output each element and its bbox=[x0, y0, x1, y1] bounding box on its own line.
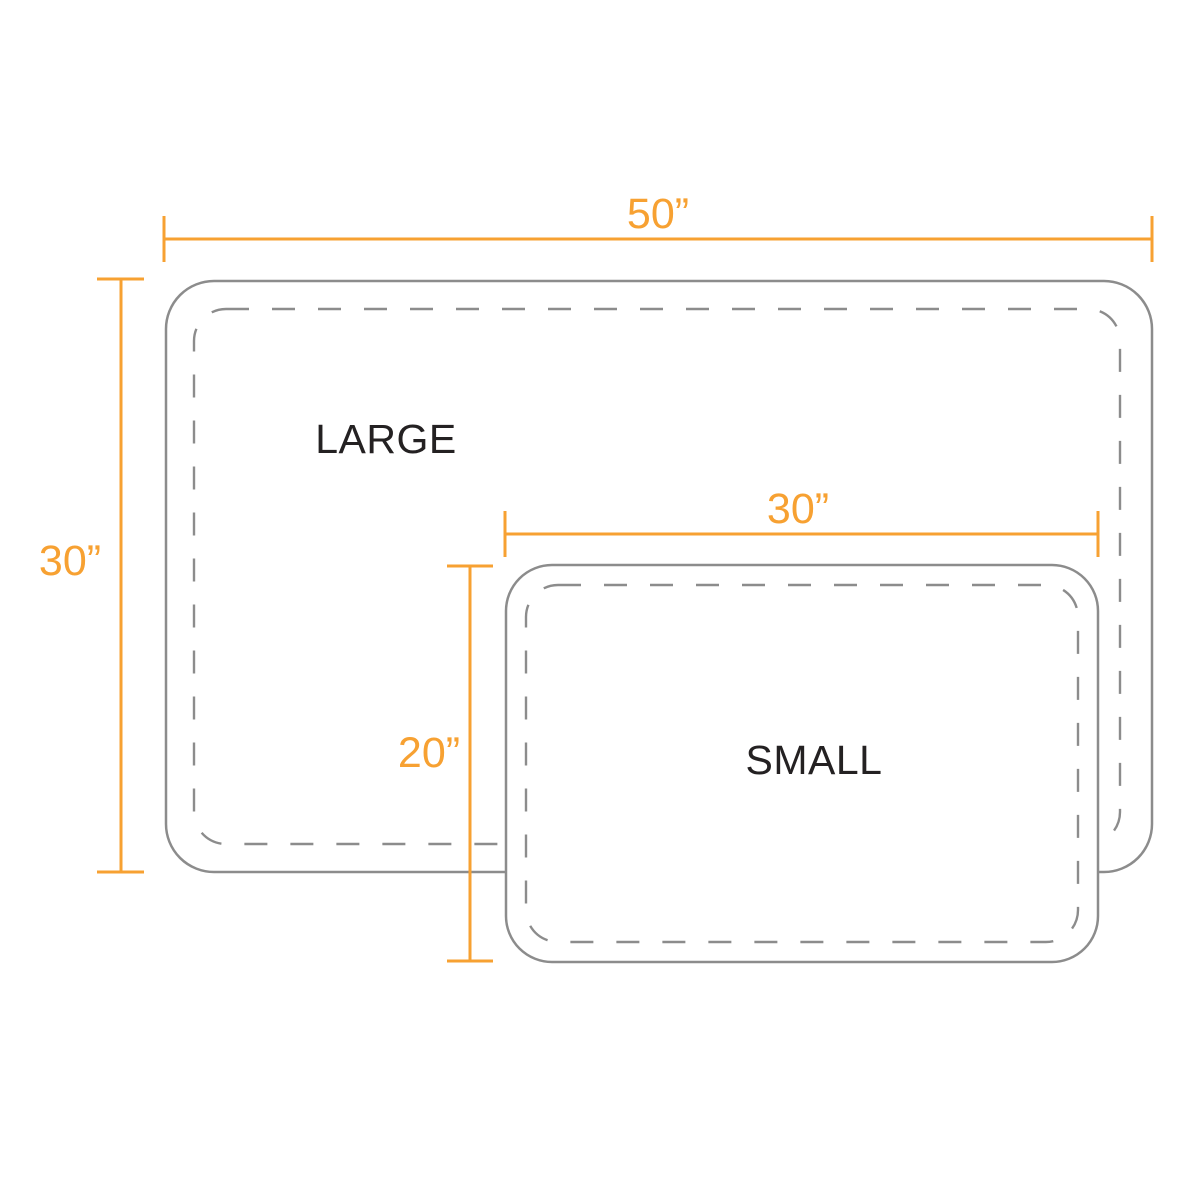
dim-small-width-label: 30” bbox=[767, 485, 829, 533]
dim-small-height-label: 20” bbox=[398, 729, 460, 777]
dim-large-height: 30” bbox=[39, 279, 144, 872]
size-comparison-diagram: 50” 30” 30” 20” LARGE SMALL bbox=[0, 0, 1200, 1200]
dim-large-height-label: 30” bbox=[39, 537, 101, 585]
dim-large-width: 50” bbox=[164, 190, 1152, 262]
dim-large-width-label: 50” bbox=[627, 190, 689, 238]
small-mat-label: SMALL bbox=[746, 737, 883, 783]
large-mat-label: LARGE bbox=[315, 416, 457, 462]
